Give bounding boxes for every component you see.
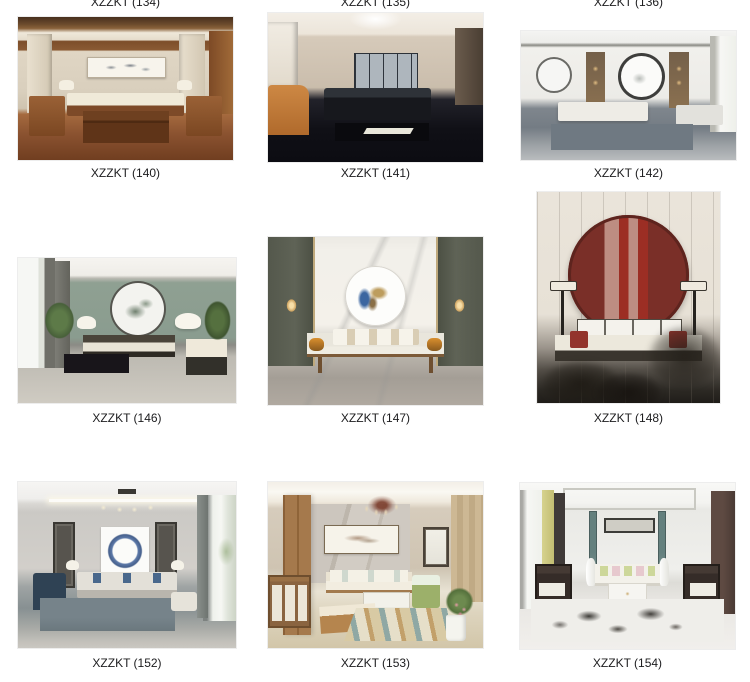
lantern [285,297,298,314]
file-label-partial[interactable]: XZZKT (135) [268,0,483,9]
pillows [600,566,656,576]
file-label-partial[interactable]: XZZKT (134) [18,0,233,9]
sofa [558,102,648,121]
file-label-partial[interactable]: XZZKT (136) [521,0,736,9]
ottoman [64,354,129,373]
white-planter [446,615,465,642]
bolster-cushion [427,338,442,351]
curtain [197,495,208,618]
rug [40,598,175,631]
green-chair [412,575,440,608]
pillows [83,573,170,583]
wall-art [604,518,655,534]
thumbnail-image[interactable] [521,31,736,160]
plant [199,293,236,348]
pillows [333,329,419,344]
shelving-unit [268,22,298,88]
bolster-cushion [309,338,324,351]
file-label[interactable]: XZZKT (147) [268,411,483,425]
wall-art [324,525,399,554]
coffee-table [83,111,169,142]
file-label[interactable]: XZZKT (148) [537,411,720,425]
display-cabinet [669,52,688,109]
file-label[interactable]: XZZKT (142) [521,166,736,180]
pine-branch-foreground [583,365,675,403]
tray [363,128,414,134]
table-lamp [77,316,97,329]
thumbnail-image[interactable] [268,237,483,405]
red-pillow [570,331,588,348]
file-label[interactable]: XZZKT (141) [268,166,483,180]
thumbnail-image[interactable] [537,192,720,403]
thumbnail-image[interactable] [18,17,233,160]
round-wall-art [536,57,572,93]
file-label[interactable]: XZZKT (153) [268,656,483,670]
hallway [455,28,483,105]
pillows [330,570,407,582]
window [203,495,236,621]
thumbnail-image[interactable] [18,258,236,403]
window [423,527,449,567]
armchair [186,96,223,136]
display-cabinet [586,52,605,109]
enso-circle-painting [101,527,149,575]
rug [551,124,693,150]
floor-lamp-shade [550,281,578,291]
chandelier-shades [96,492,157,512]
orange-armchair [268,85,309,136]
table-lamp [59,80,74,90]
table-lamp [177,80,192,90]
file-label[interactable]: XZZKT (152) [18,656,236,670]
table-lamp [175,313,201,329]
round-wall-art [345,266,405,326]
floor-lamp-shade [680,281,708,291]
thumbnail-image[interactable] [18,482,236,648]
chandelier [358,489,405,526]
thumbnail-image[interactable] [268,13,483,162]
chair-cushion [690,583,716,596]
chair-cushion [539,583,565,596]
lantern [453,297,466,314]
wall-art [87,57,166,78]
file-label[interactable]: XZZKT (146) [18,411,236,425]
armchair [29,96,66,136]
cabinet-doors [272,585,306,622]
thumbnail-image[interactable] [268,482,483,648]
white-vase [659,558,670,586]
file-label[interactable]: XZZKT (140) [18,166,233,180]
table-lamp [66,560,79,570]
sofa [324,88,432,121]
file-label[interactable]: XZZKT (154) [520,656,735,670]
ceiling-frame [563,488,696,510]
plant [40,296,79,345]
round-wall-art [618,53,665,100]
table-lamp [171,560,184,570]
chaise [676,105,723,126]
pouf [171,592,197,612]
thumbnail-gallery: XZZKT (134) XZZKT (135) XZZKT (136) XZZK… [0,0,750,682]
ink-splash-rug [531,599,725,642]
round-wall-art [110,281,166,337]
thumbnail-image[interactable] [520,483,735,649]
